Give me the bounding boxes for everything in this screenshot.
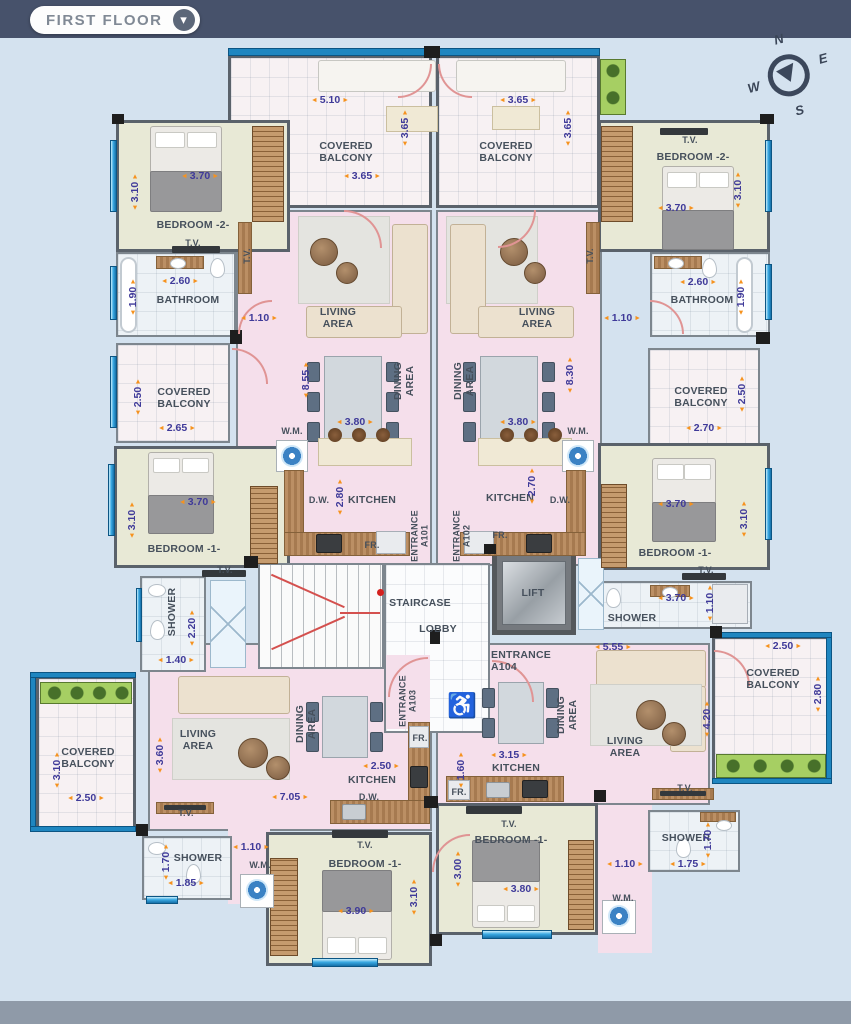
wall-column	[484, 544, 496, 554]
room-label-living-area: LIVING AREA	[514, 306, 560, 330]
bed	[148, 452, 214, 534]
page-title: FIRST FLOOR	[46, 12, 163, 29]
room-label-covered-balcony: COVERED BALCONY	[669, 385, 733, 409]
dim: 5.55	[594, 641, 632, 653]
washing-machine	[602, 900, 636, 934]
room-label-kitchen: KITCHEN	[348, 494, 396, 506]
armchair	[662, 722, 686, 746]
washing-machine	[562, 440, 594, 472]
dim: 3.00	[452, 850, 464, 888]
dim: 2.20	[186, 609, 198, 647]
toilet	[210, 258, 225, 278]
dim: 3.10	[126, 501, 138, 539]
wall-column	[136, 824, 148, 836]
stair-guide-line	[340, 612, 380, 614]
armchair	[336, 262, 358, 284]
wall-column	[424, 46, 440, 58]
balcony-frame	[712, 632, 832, 638]
room-label-covered-balcony: COVERED BALCONY	[474, 140, 538, 164]
room-label-covered-balcony: COVERED BALCONY	[152, 386, 216, 410]
dim: 1.10	[704, 584, 716, 622]
dim: 1.10	[240, 312, 278, 324]
bar-stool	[376, 428, 390, 442]
room-label-bedroom1: BEDROOM -1-	[475, 834, 548, 846]
dim: 3.80	[336, 416, 374, 428]
dining-chair	[542, 362, 555, 382]
dim: 3.60	[154, 736, 166, 774]
sink-basin	[716, 820, 732, 831]
dim: 2.50	[764, 640, 802, 652]
tv-label: T.V.	[357, 840, 372, 850]
stove	[522, 780, 548, 798]
tv-label: T.V.	[501, 819, 516, 829]
room-label-bedroom2: BEDROOM -2-	[157, 219, 230, 231]
tv-label: T.V.	[185, 238, 200, 248]
dim: 3.80	[499, 416, 537, 428]
shaft-right	[578, 558, 604, 630]
wheelchair-icon: ♿	[447, 692, 477, 721]
kitchen-sink	[486, 782, 510, 798]
sofa	[596, 650, 706, 688]
dim: 8.30	[564, 356, 576, 394]
window	[110, 266, 117, 320]
tv-label: T.V.	[698, 565, 713, 575]
window	[136, 588, 142, 642]
dim: 3.10	[732, 171, 744, 209]
compass-n: N	[772, 31, 785, 48]
room-label-shower: SHOWER	[174, 852, 222, 864]
bar-stool	[328, 428, 342, 442]
dim: 3.70	[181, 170, 219, 182]
wall-column	[430, 934, 442, 946]
dim: 2.80	[334, 478, 346, 516]
dining-chair	[370, 702, 383, 722]
room-label-bathroom: BATHROOM	[671, 294, 734, 306]
dim: 3.90	[337, 905, 375, 917]
toilet	[606, 588, 621, 608]
wall-column	[760, 114, 774, 124]
balcony-frame	[30, 672, 136, 678]
floor-selector[interactable]: FIRST FLOOR ▾	[30, 6, 200, 34]
dim: 3.70	[179, 496, 217, 508]
bar-stool	[352, 428, 366, 442]
kitchen-island	[318, 438, 412, 466]
fridge	[376, 531, 406, 554]
staircase-zone	[258, 563, 384, 669]
dim: 1.10	[232, 841, 270, 853]
coffee-table	[492, 106, 540, 130]
room-label-bathroom: BATHROOM	[157, 294, 220, 306]
chevron-down-icon[interactable]: ▾	[173, 9, 195, 31]
dim: 3.65	[399, 109, 411, 147]
room-label-dining-area: DINING AREA	[294, 701, 318, 747]
wall-column	[244, 556, 258, 568]
dim: 3.65	[343, 170, 381, 182]
dim: 1.85	[167, 877, 205, 889]
window	[765, 140, 772, 212]
armchair	[238, 738, 268, 768]
compass-e: E	[817, 50, 829, 67]
dim: 3.65	[499, 94, 537, 106]
tv-label: T.V.	[585, 248, 595, 263]
wardrobe	[250, 486, 278, 564]
stove	[526, 534, 552, 553]
planter	[600, 59, 626, 115]
dim: 8.55	[300, 361, 312, 399]
dim: 1.75	[669, 858, 707, 870]
room-label-staircase: STAIRCASE	[389, 597, 451, 609]
dim: 3.70	[657, 592, 695, 604]
room-label-bedroom1: BEDROOM -1-	[148, 543, 221, 555]
shower-stall	[712, 584, 748, 624]
dining-chair	[370, 732, 383, 752]
room-label-dining-area: DINING AREA	[555, 692, 579, 738]
dim: 2.50	[736, 375, 748, 413]
sofa	[456, 60, 566, 92]
window	[146, 896, 178, 904]
armchair	[310, 238, 338, 266]
entrance-label-a101: ENTRANCE A101	[410, 504, 431, 568]
wall-column	[594, 790, 606, 802]
dim: 1.90	[127, 278, 139, 316]
tv-unit	[466, 806, 522, 814]
dw-label: D.W.	[359, 792, 379, 802]
stove	[316, 534, 342, 553]
stove	[410, 766, 428, 788]
dw-label: D.W.	[550, 495, 570, 505]
wardrobe	[568, 840, 594, 930]
tv-unit	[332, 830, 388, 838]
sink-basin	[148, 584, 166, 597]
tv-label: T.V.	[677, 783, 692, 793]
dim: 2.70	[685, 422, 723, 434]
room-label-living-area: LIVING AREA	[175, 728, 221, 752]
entrance-label-a103: ENTRANCE A103	[398, 669, 419, 733]
dim: 1.60	[455, 751, 467, 789]
room-label-bedroom1: BEDROOM -1-	[639, 547, 712, 559]
room-label-lobby: LOBBY	[419, 623, 457, 635]
room-label-lift: LIFT	[522, 587, 545, 599]
shaft-left	[210, 580, 246, 668]
tv-label: T.V.	[682, 135, 697, 145]
window	[482, 930, 552, 939]
room-label-dining-area: DINING AREA	[392, 358, 416, 404]
dw-label: D.W.	[309, 495, 329, 505]
footer-band	[0, 1001, 851, 1024]
window	[312, 958, 378, 967]
dim: 3.70	[657, 202, 695, 214]
dim: 3.80	[502, 883, 540, 895]
header-bar: FIRST FLOOR ▾	[0, 0, 851, 38]
sink-basin	[668, 258, 684, 269]
bar-stool	[500, 428, 514, 442]
dim: 1.40	[157, 654, 195, 666]
dim: 2.65	[158, 422, 196, 434]
dim: 2.70	[526, 467, 538, 505]
bar-stool	[524, 428, 538, 442]
dim: 2.50	[362, 760, 400, 772]
dim: 2.80	[812, 675, 824, 713]
dim: 1.90	[735, 278, 747, 316]
wall-column	[710, 626, 722, 638]
room-label-kitchen: KITCHEN	[348, 774, 396, 786]
toilet	[702, 258, 717, 278]
floor-plan-page: FIRST FLOOR ▾ N E S W	[0, 0, 851, 1024]
room-label-living-area: LIVING AREA	[315, 306, 361, 330]
dim: 1.70	[160, 843, 172, 881]
wall-column	[756, 332, 770, 344]
dining-chair	[542, 392, 555, 412]
planter	[40, 682, 132, 704]
wm-label: W.M.	[567, 426, 588, 436]
dining-chair	[463, 422, 476, 442]
tv-label: T.V.	[242, 248, 252, 263]
dim: 2.50	[132, 378, 144, 416]
sink-basin	[170, 258, 186, 269]
tv-label: T.V.	[217, 565, 232, 575]
planter	[716, 754, 826, 778]
dim: 3.15	[490, 749, 528, 761]
room-label-dining-area: DINING AREA	[452, 358, 476, 404]
tv-label: T.V.	[178, 808, 193, 818]
bar-stool	[548, 428, 562, 442]
room-label-living-area: LIVING AREA	[602, 735, 648, 759]
dim: 2.60	[161, 275, 199, 287]
balcony-frame	[826, 632, 832, 784]
wm-label: W.M.	[249, 860, 270, 870]
wardrobe	[601, 126, 633, 222]
fr-label: FR.	[492, 530, 507, 540]
armchair	[266, 756, 290, 780]
window	[765, 264, 772, 320]
room-label-bedroom2: BEDROOM -2-	[657, 151, 730, 163]
dim: 3.10	[129, 173, 141, 211]
washing-machine	[276, 440, 308, 472]
wall-column	[424, 796, 438, 808]
fr-label: FR.	[364, 540, 379, 550]
window	[228, 48, 432, 56]
window	[110, 356, 117, 428]
compass-w: W	[746, 78, 762, 96]
dim: 1.70	[702, 821, 714, 859]
entrance-label-a102: ENTRANCE A102	[452, 504, 473, 568]
toilet	[150, 620, 165, 640]
dim: 3.65	[562, 109, 574, 147]
room-label-covered-balcony: COVERED BALCONY	[56, 746, 120, 770]
dim: 5.10	[311, 94, 349, 106]
room-label-covered-balcony: COVERED BALCONY	[741, 667, 805, 691]
dim: 3.10	[738, 500, 750, 538]
dim: 3.70	[657, 498, 695, 510]
room-label-shower: SHOWER	[608, 612, 656, 624]
wardrobe	[270, 858, 298, 956]
dim: 7.05	[271, 791, 309, 803]
dim: 1.10	[603, 312, 641, 324]
window	[436, 48, 600, 56]
stair-start-dot	[377, 589, 384, 596]
dim: 3.10	[51, 751, 63, 789]
dim: 2.50	[67, 792, 105, 804]
dim: 4.20	[701, 700, 713, 738]
dim: 3.10	[408, 878, 420, 916]
dining-chair	[482, 718, 495, 738]
room-label-kitchen: KITCHEN	[492, 762, 540, 774]
kitchen-island	[478, 438, 572, 466]
wardrobe	[601, 484, 627, 568]
window	[765, 468, 772, 540]
room-label-covered-balcony: COVERED BALCONY	[314, 140, 378, 164]
wall-column	[112, 114, 124, 124]
wm-label: W.M.	[612, 893, 633, 903]
entrance-label-a104: ENTRANCE A104	[491, 649, 561, 673]
washing-machine	[240, 874, 274, 908]
armchair	[636, 700, 666, 730]
compass-s: S	[793, 102, 805, 119]
room-label-shower: SHOWER	[166, 588, 178, 636]
window	[110, 140, 117, 212]
window	[108, 464, 115, 536]
armchair	[524, 262, 546, 284]
kitchen-sink	[342, 804, 366, 820]
fr-label: FR.	[412, 733, 427, 743]
balcony-frame	[30, 826, 136, 832]
balcony-frame	[30, 672, 36, 832]
bed	[150, 126, 222, 212]
dim: 1.10	[606, 858, 644, 870]
dining-table	[322, 696, 368, 758]
room-label-bedroom1: BEDROOM -1-	[329, 858, 402, 870]
dim: 2.60	[679, 276, 717, 288]
wardrobe	[252, 126, 284, 222]
balcony-frame	[712, 778, 832, 784]
coffee-table	[386, 106, 438, 132]
sofa	[178, 676, 290, 714]
wm-label: W.M.	[281, 426, 302, 436]
